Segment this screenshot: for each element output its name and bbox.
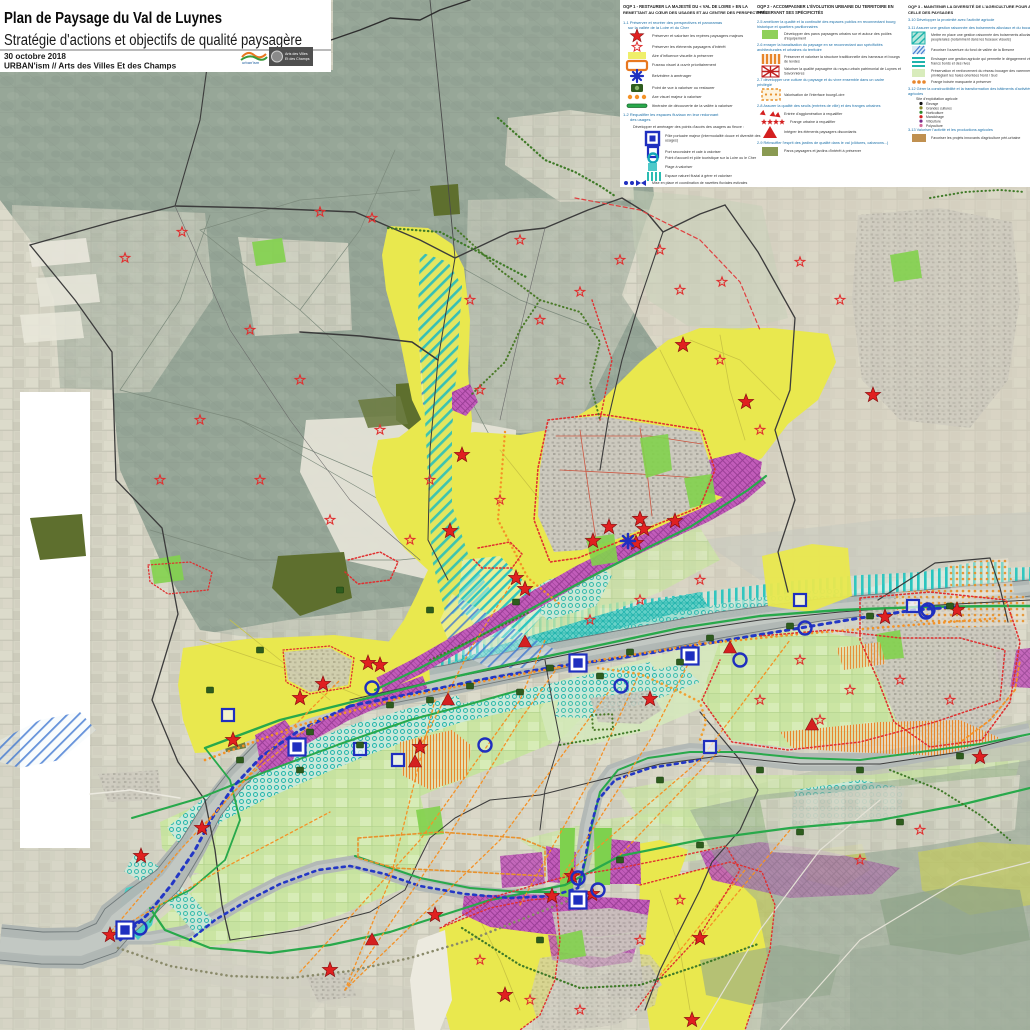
svg-text:2-8 Assurer la qualité des seu: 2-8 Assurer la qualité des seuils (entré… xyxy=(757,104,881,108)
svg-text:Port secondaire et cale à valo: Port secondaire et cale à valoriser xyxy=(665,150,722,154)
svg-text:usages): usages) xyxy=(665,139,678,143)
svg-text:urban'ism: urban'ism xyxy=(242,60,260,65)
svg-text:Mise en place et coordination: Mise en place et coordination de navette… xyxy=(652,181,747,185)
svg-text:CELLE DES PAYSAGES: CELLE DES PAYSAGES xyxy=(908,10,953,15)
svg-text:3-10 Développer la proximité a: 3-10 Développer la proximité avec l'acti… xyxy=(908,18,994,22)
svg-text:30 octobre 2018: 30 octobre 2018 xyxy=(4,52,66,61)
svg-text:privilégié: privilégié xyxy=(757,83,772,87)
svg-text:Préserver et valoriser la stru: Préserver et valoriser la structure trad… xyxy=(784,55,900,59)
svg-text:Développer des parcs paysagers: Développer des parcs paysagers urbains s… xyxy=(784,32,892,36)
svg-text:Plage à valoriser: Plage à valoriser xyxy=(665,165,693,169)
svg-text:OQP 2 - ACCOMPAGNER L'ÉVOLUTIO: OQP 2 - ACCOMPAGNER L'ÉVOLUTION URBAINE … xyxy=(757,4,894,9)
svg-text:Maraîchage: Maraîchage xyxy=(926,115,944,119)
svg-text:de levdes: de levdes xyxy=(784,60,800,64)
svg-text:Plan de Paysage du Val de Luyn: Plan de Paysage du Val de Luynes xyxy=(4,10,222,27)
svg-text:Valoriser la qualité paysagère: Valoriser la qualité paysagère du noyau … xyxy=(784,67,901,71)
svg-text:architecturales et urbaines du: architecturales et urbaines du territoir… xyxy=(757,48,822,52)
svg-text:Préserver et valoriser les rep: Préserver et valoriser les repères paysa… xyxy=(652,33,743,38)
svg-text:Arts des Villes: Arts des Villes xyxy=(285,52,308,56)
svg-text:PRÉSERVANT SES SPÉCIFICITÉS: PRÉSERVANT SES SPÉCIFICITÉS xyxy=(757,10,823,15)
svg-text:Parcs paysagers et jardins d'i: Parcs paysagers et jardins d'intérêt à p… xyxy=(784,149,862,153)
svg-text:Préserver les éléments paysage: Préserver les éléments paysagers d'intér… xyxy=(652,44,727,49)
svg-text:3-13 Valoriser l'activité et l: 3-13 Valoriser l'activité et les product… xyxy=(908,128,993,132)
svg-text:Envisager une gestion agricole: Envisager une gestion agricole qui perme… xyxy=(931,57,1030,61)
svg-text:Fuseau visuel à ouvrir priorit: Fuseau visuel à ouvrir prioritairement xyxy=(652,62,717,67)
svg-text:URBAN'ism // Arts des Villes E: URBAN'ism // Arts des Villes Et des Cham… xyxy=(4,62,177,71)
svg-text:agricoles: agricoles xyxy=(908,92,923,96)
svg-text:Pôle portuaire majeur (intermo: Pôle portuaire majeur (intermodalité dou… xyxy=(665,134,761,138)
svg-text:Intégrer les éléments paysager: Intégrer les éléments paysagers discorda… xyxy=(784,130,857,134)
svg-text:Itinéraire de découverte de la: Itinéraire de découverte de la vallée à … xyxy=(652,103,733,108)
svg-text:Mettre en place une gestion ra: Mettre en place une gestion raisonnée de… xyxy=(931,33,1030,37)
svg-text:Site d'exploitation agricole: Site d'exploitation agricole xyxy=(916,97,958,101)
svg-text:Horticulture: Horticulture xyxy=(926,111,943,115)
svg-text:des usages: des usages xyxy=(630,117,650,122)
svg-text:Stratégie d'actions et objecti: Stratégie d'actions et objectifs de qual… xyxy=(4,32,302,49)
svg-text:Valorisation de l'interface bo: Valorisation de l'interface bourg/Loire xyxy=(784,93,845,97)
svg-text:Élevage: Élevage xyxy=(926,101,938,106)
svg-text:Frange urbaine à requalifier: Frange urbaine à requalifier xyxy=(790,120,836,124)
svg-text:3-11 Assurer une gestion raiso: 3-11 Assurer une gestion raisonnée des b… xyxy=(908,26,1030,30)
svg-text:REMETTANT AU CŒUR DES USAGES E: REMETTANT AU CŒUR DES USAGES ET AU CENTR… xyxy=(623,10,767,15)
svg-text:OQP 1 - RESTAURER LA MAJESTÉ D: OQP 1 - RESTAURER LA MAJESTÉ DU « VAL DE… xyxy=(623,4,748,9)
svg-text:2-6 enrayer la banalisation du: 2-6 enrayer la banalisation du paysage e… xyxy=(757,43,883,47)
svg-text:privilégiant les haies orienté: privilégiant les haies orientées Nord / … xyxy=(931,74,997,78)
svg-text:Espace naturel fluvial à gérer: Espace naturel fluvial à gérer et valori… xyxy=(665,174,733,178)
svg-text:Frange boisée marquante à prés: Frange boisée marquante à préserver xyxy=(931,80,992,84)
svg-text:d'équipement: d'équipement xyxy=(784,37,806,41)
svg-text:Développer et aménager des poi: Développer et aménager des points d'accè… xyxy=(633,125,744,129)
svg-text:Belvédère à aménager: Belvédère à aménager xyxy=(652,73,692,78)
svg-text:Axe visuel majeur à valoriser: Axe visuel majeur à valoriser xyxy=(652,94,702,99)
svg-text:Point d'accueil et pôle touris: Point d'accueil et pôle touristique sur … xyxy=(665,156,757,160)
svg-text:Favoriser les projets innovant: Favoriser les projets innovants d'agricu… xyxy=(931,136,1020,140)
svg-text:2-9 Réinsuffler l'esprit des j: 2-9 Réinsuffler l'esprit des jardins de … xyxy=(757,141,889,145)
svg-text:Entrée d'agglomération à requa: Entrée d'agglomération à requalifier xyxy=(784,112,843,116)
svg-text:Point de vue à valoriser ou re: Point de vue à valoriser ou restaurer xyxy=(652,85,715,90)
svg-text:OQP 3 - MAINTENIR LA DIVERSITÉ: OQP 3 - MAINTENIR LA DIVERSITÉ DE L'AGRI… xyxy=(908,4,1030,9)
svg-text:3-12 Gérer la constructibilité: 3-12 Gérer la constructibilité et la tra… xyxy=(908,87,1030,91)
svg-text:Aire d'influence visuelle à pr: Aire d'influence visuelle à préserver xyxy=(652,53,714,58)
svg-text:Grandes cultures: Grandes cultures xyxy=(926,106,952,110)
svg-text:Favoriser l'ouverture du fond: Favoriser l'ouverture du fond de vallée … xyxy=(931,48,1014,52)
svg-text:francs bords et des rives: francs bords et des rives xyxy=(931,62,970,66)
svg-text:Préservation et renforcement d: Préservation et renforcement du réseau b… xyxy=(931,69,1030,73)
svg-text:peupleraies (notamment dans le: peupleraies (notamment dans les fuseaux … xyxy=(931,38,1011,42)
svg-text:Savonnières: Savonnières xyxy=(784,72,805,76)
svg-text:Viticulture: Viticulture xyxy=(926,120,941,124)
svg-text:historique et quartiers pavill: historique et quartiers pavillonnaires xyxy=(757,25,818,29)
svg-text:Et des Champs: Et des Champs xyxy=(285,57,310,61)
svg-text:2-7 développer une culture du: 2-7 développer une culture du paysage et… xyxy=(757,78,884,82)
svg-text:2-5 améliorer la qualité et la: 2-5 améliorer la qualité et la continuit… xyxy=(757,20,895,24)
